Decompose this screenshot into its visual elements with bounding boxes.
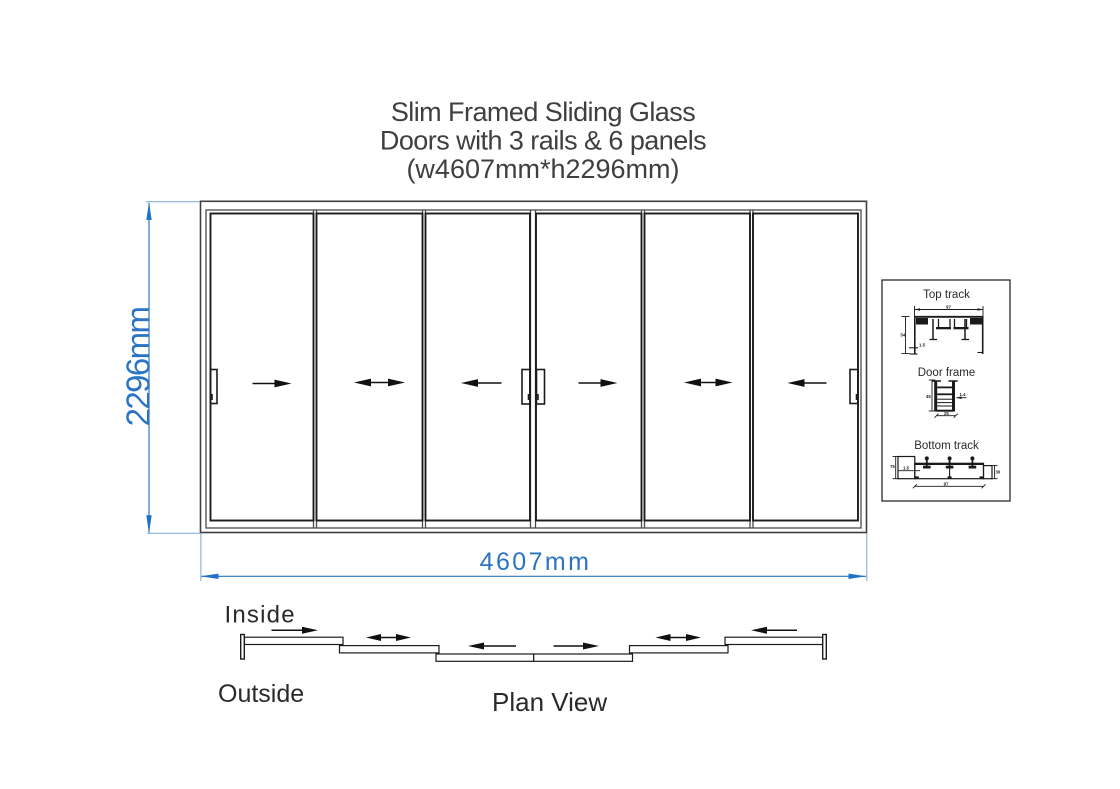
svg-text:1.4: 1.4 xyxy=(960,392,967,397)
svg-text:75: 75 xyxy=(890,464,895,469)
svg-text:Inside: Inside xyxy=(225,602,296,629)
svg-text:97: 97 xyxy=(946,304,951,309)
svg-text:97: 97 xyxy=(944,481,949,486)
svg-text:54: 54 xyxy=(901,333,906,338)
svg-text:Door frame: Door frame xyxy=(918,367,976,379)
svg-text:Bottom track: Bottom track xyxy=(914,440,979,452)
svg-text:Slim Framed Sliding Glass: Slim Framed Sliding Glass xyxy=(391,97,695,127)
svg-text:(w4607mm*h2296mm): (w4607mm*h2296mm) xyxy=(406,154,679,184)
svg-text:4607mm: 4607mm xyxy=(480,548,592,576)
svg-text:30: 30 xyxy=(996,470,1001,475)
svg-text:1.5: 1.5 xyxy=(919,343,926,348)
svg-text:Doors with 3 rails & 6 panels: Doors with 3 rails & 6 panels xyxy=(380,126,706,156)
svg-text:Outside: Outside xyxy=(218,680,304,708)
svg-text:2296mm: 2296mm xyxy=(119,307,156,426)
svg-text:1.5: 1.5 xyxy=(903,465,910,470)
svg-text:Top track: Top track xyxy=(923,289,970,301)
svg-text:45: 45 xyxy=(926,394,931,399)
svg-text:25: 25 xyxy=(944,411,949,416)
svg-text:Plan View: Plan View xyxy=(492,687,607,717)
